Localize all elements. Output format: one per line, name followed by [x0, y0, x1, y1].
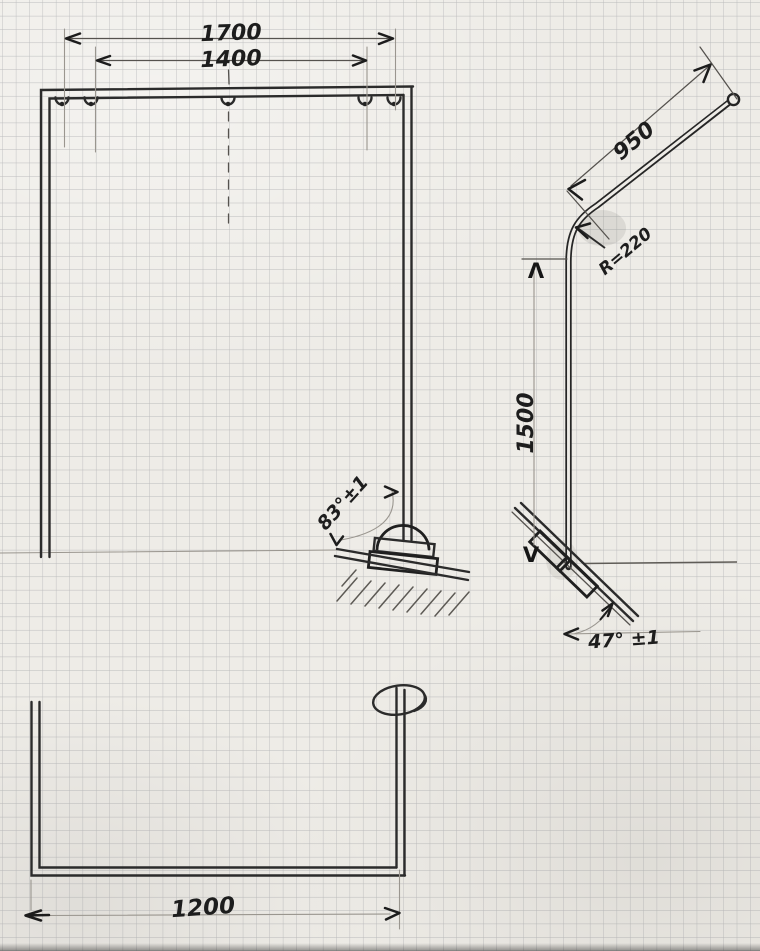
dim-marker-bottom: V [523, 543, 540, 567]
sketch-canvas: 1700 1400 83°±1 [0, 0, 760, 951]
dimension-label-1200: 1200 [170, 893, 236, 923]
pole-tip-eyelet [728, 94, 739, 105]
dimension-label-1400: 1400 [200, 46, 262, 73]
dim-marker-top: Λ [528, 259, 545, 283]
dimension-label-1500: 1500 [514, 392, 539, 453]
dimension-label-1700: 1700 [200, 20, 262, 47]
center-tick [229, 70, 230, 84]
scan-edge-shadow [0, 943, 760, 951]
scanned-sketch-page: 1700 1400 83°±1 [0, 0, 760, 951]
